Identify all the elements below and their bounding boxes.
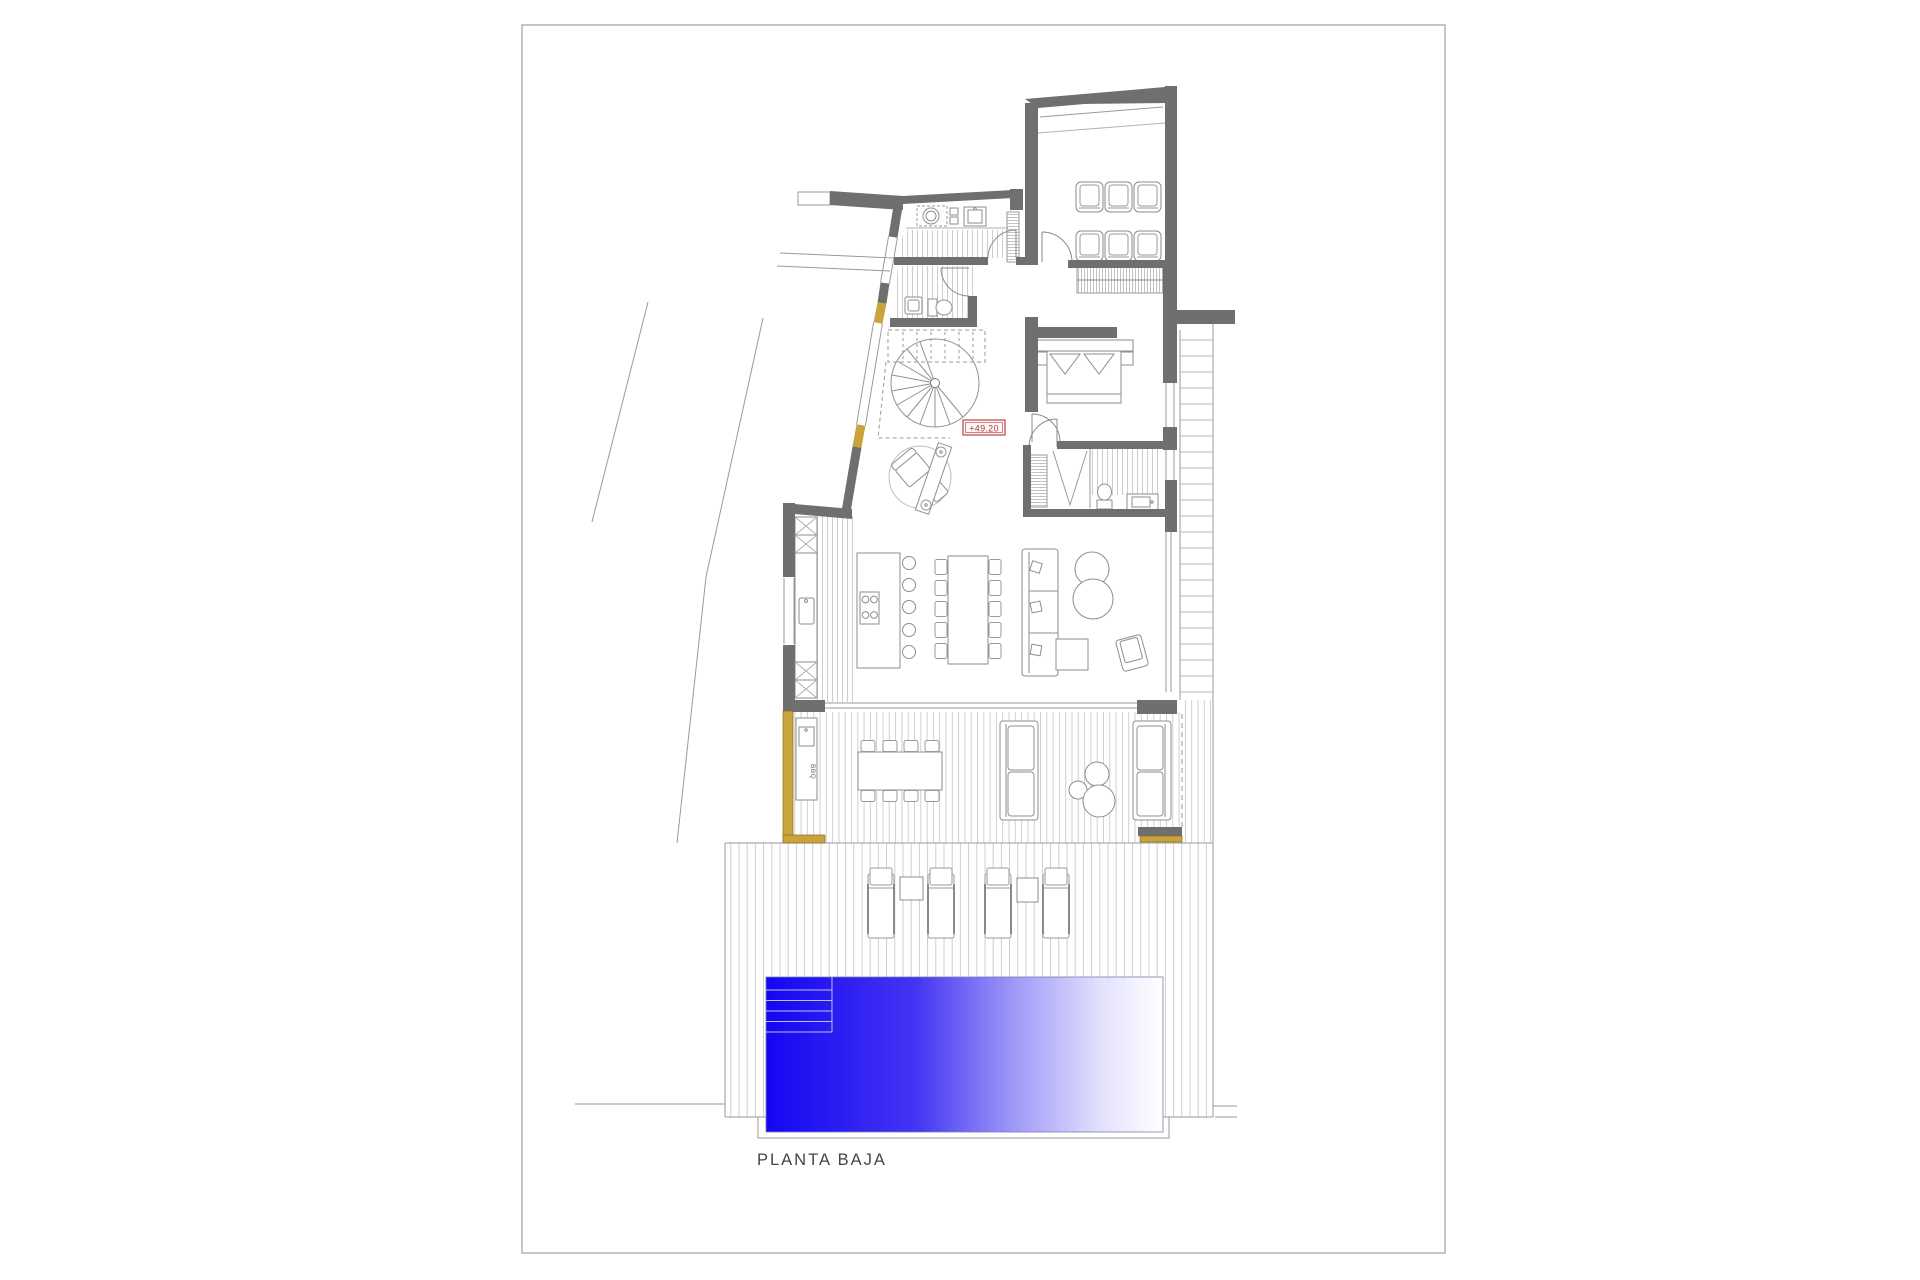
bar-stool [903,624,916,637]
lounger-table [900,877,923,900]
side-table [1083,785,1115,817]
toilet-icon [1097,500,1112,509]
pool-area [758,977,1169,1138]
level-marker-text: +49.20 [969,424,999,434]
coffee-table [1073,579,1113,619]
bed-headboard [1035,340,1133,351]
bar-stool [903,601,916,614]
dining-table [948,556,988,664]
level-marker: +49.20 [963,420,1005,435]
bedroom [1035,340,1133,403]
lounger-table [1017,878,1038,902]
terrace-decking [793,712,1182,843]
dining-area [935,556,1001,664]
bar-stool [903,557,916,570]
floorplan-page: +49.20 BBQ PLANTA BAJA [0,0,1920,1280]
wc-room [905,297,952,316]
plan-title: PLANTA BAJA [757,1151,887,1169]
nightstand [1121,352,1133,365]
floorplan-drawing: +49.20 BBQ PLANTA BAJA [0,0,1920,1280]
radiator [1007,212,1019,262]
bbq-label: BBQ [809,764,816,779]
side-table [1085,762,1109,786]
throw-pillow [1030,644,1042,656]
bar-stool [903,579,916,592]
bar-stool [903,646,916,659]
throw-pillow [1030,601,1042,613]
ottoman [1056,639,1088,670]
outdoor-dining-table [858,752,942,790]
